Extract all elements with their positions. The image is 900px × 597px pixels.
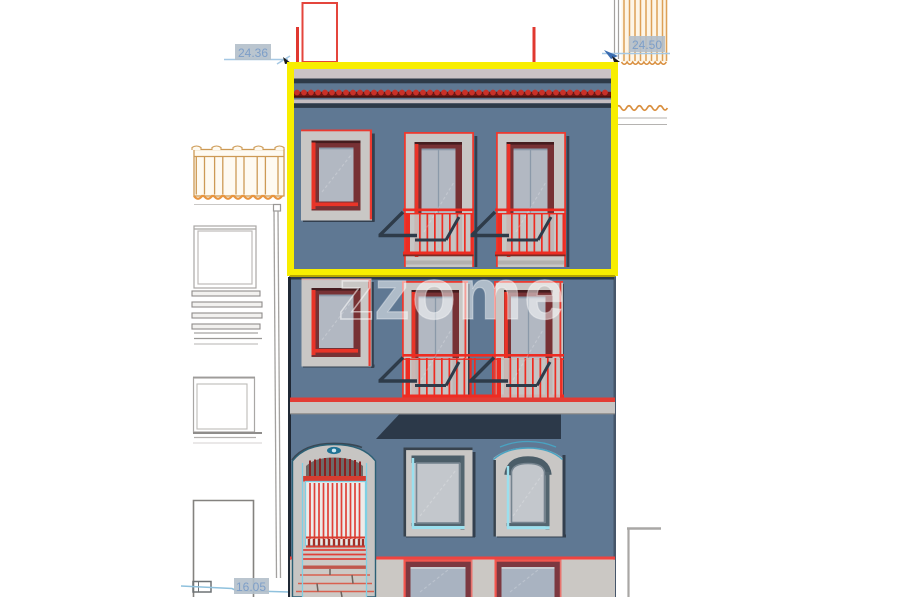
svg-text:z: z (338, 255, 374, 335)
svg-text:16.05: 16.05 (236, 580, 266, 594)
svg-text:zome: zome (374, 255, 566, 335)
svg-text:24.50: 24.50 (632, 38, 662, 52)
svg-text:24.36: 24.36 (238, 46, 268, 60)
